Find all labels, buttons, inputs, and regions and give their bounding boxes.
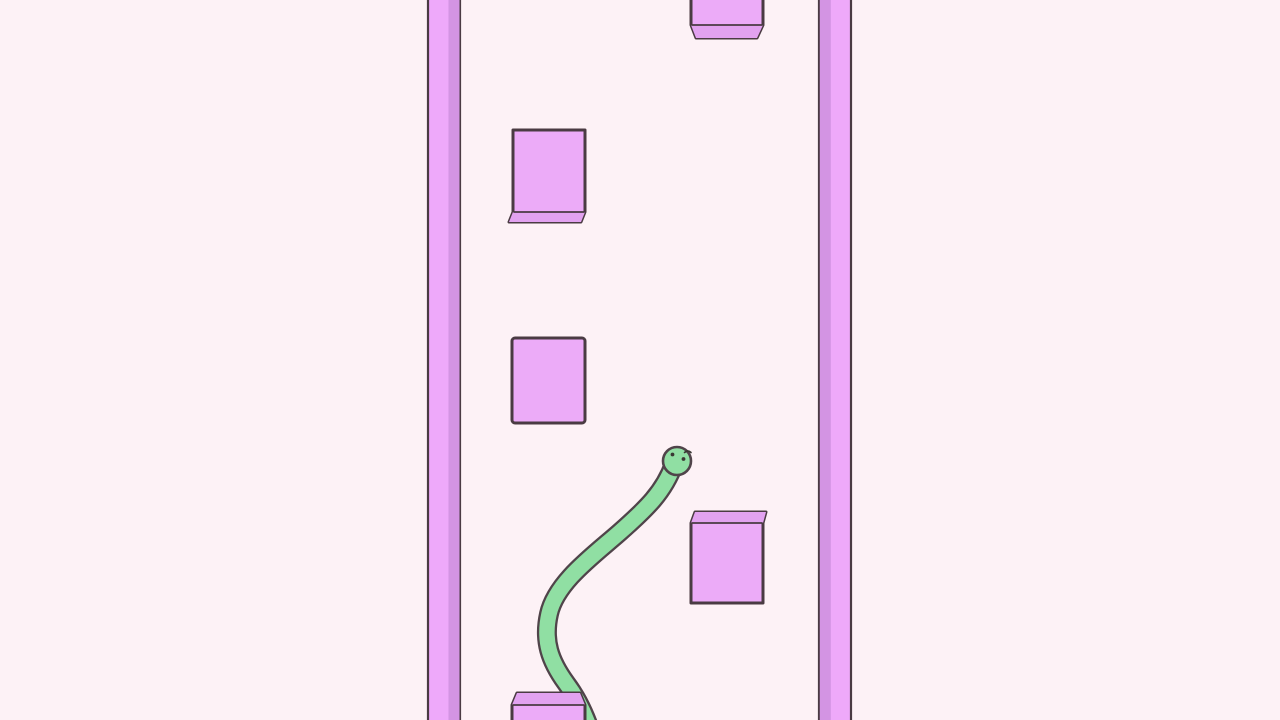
obstacle-block-lower-right	[691, 512, 766, 603]
obstacle-block-mid-left-face	[512, 338, 585, 423]
obstacle-block-bottom-bevel	[512, 693, 585, 705]
obstacle-block-mid-left	[512, 338, 585, 423]
obstacle-block-bottom	[512, 693, 585, 720]
play-field-background	[0, 0, 1280, 720]
obstacle-block-lower-right-bevel	[691, 512, 766, 523]
obstacle-block-top-bevel	[691, 25, 763, 38]
left-wall	[428, 0, 460, 720]
right-wall-inner-shade	[820, 0, 831, 720]
right-wall	[819, 0, 851, 720]
obstacle-block-top	[691, 0, 763, 38]
obstacle-block-upper-left	[509, 130, 585, 222]
obstacle-block-upper-left-face	[509, 130, 585, 222]
game-stage	[0, 0, 1280, 720]
snake-eye-1	[671, 453, 675, 457]
snake-eye-2	[682, 457, 686, 461]
game-canvas[interactable]	[0, 0, 1280, 720]
obstacle-block-lower-right-face	[691, 512, 766, 603]
left-wall-inner-shade	[449, 0, 460, 720]
obstacle-block-upper-left-bevel	[509, 212, 585, 222]
